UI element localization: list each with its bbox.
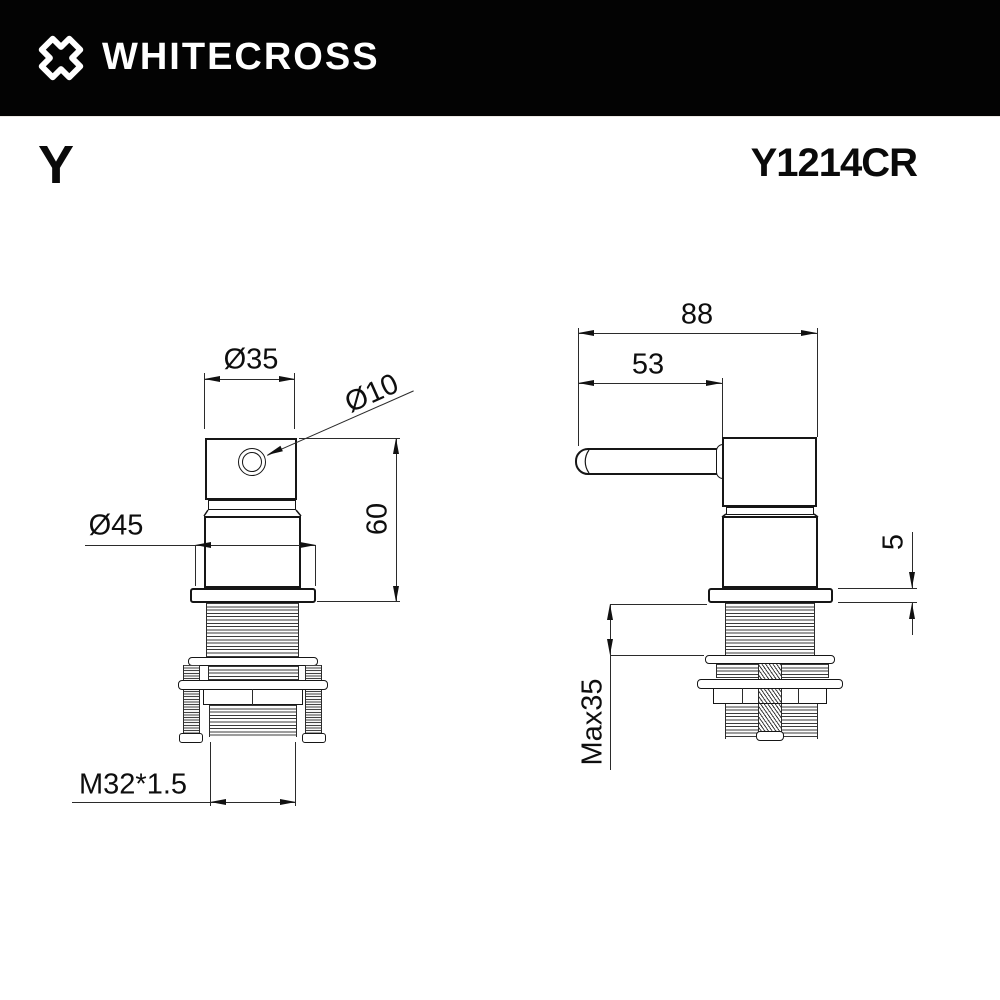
threaded-section [206, 603, 299, 657]
arrowhead-icon [909, 603, 915, 619]
arrowhead-icon [393, 586, 399, 602]
extension-line [610, 655, 704, 656]
dim-label-thread: M32*1.5 [79, 769, 187, 802]
dimension-line [396, 438, 397, 602]
arrowhead-icon [393, 438, 399, 454]
neck-ring-side [726, 507, 814, 515]
spec-sheet: WHITECROSS Y Y1214CR Ø35 Ø10 Ø45 M32*1.5 [0, 0, 1000, 1000]
extension-line [838, 588, 917, 589]
arrowhead-icon [300, 542, 316, 548]
mid-body-front [204, 516, 301, 588]
threaded-section [209, 705, 297, 737]
extension-line [578, 328, 579, 446]
screw-head [179, 733, 203, 743]
dim-label-flange-diameter: Ø45 [89, 510, 144, 543]
hole-inner-circle [242, 452, 262, 472]
series-label: Y [38, 138, 74, 192]
dimension-line [610, 604, 611, 770]
washer-plate [705, 655, 835, 664]
arrowhead-icon [607, 604, 613, 620]
dim-label-max-mounting: Max35 [577, 678, 610, 765]
arrowhead-icon [706, 380, 722, 386]
whitecross-x-logo-icon [29, 26, 93, 90]
escutcheon-flange-side [708, 588, 833, 603]
arrowhead-icon [578, 330, 594, 336]
header-bar: WHITECROSS [0, 0, 1000, 117]
arrowhead-icon [195, 542, 211, 548]
extension-line [817, 328, 818, 437]
dimension-line [578, 333, 817, 334]
threaded-section [725, 603, 815, 655]
dimension-line [578, 383, 722, 384]
arrowhead-icon [204, 376, 220, 382]
extension-line [299, 438, 400, 439]
extension-line [210, 742, 211, 806]
valve-body-side [722, 437, 817, 507]
product-code: Y1214CR [751, 141, 917, 185]
arrowhead-icon [909, 572, 915, 588]
extension-line [317, 601, 400, 602]
center-screw-stem [758, 689, 782, 703]
arrowhead-icon [578, 380, 594, 386]
dim-label-total-depth: 88 [681, 299, 713, 332]
washer-plate [188, 657, 318, 666]
dim-label-hole-diameter: Ø10 [340, 368, 404, 420]
arrowhead-icon [801, 330, 817, 336]
arrowhead-icon [279, 376, 295, 382]
neck-ring [208, 500, 296, 510]
nut-facet-line [798, 688, 799, 704]
arrowhead-icon [210, 799, 226, 805]
side-screw-rod [183, 665, 200, 733]
extension-line [315, 545, 316, 586]
screw-head [756, 731, 784, 741]
dim-label-flange-thickness: 5 [878, 534, 911, 550]
extension-line [722, 378, 723, 437]
screw-head [302, 733, 326, 743]
dim-label-top-diameter: Ø35 [224, 344, 279, 377]
extension-line [195, 545, 196, 586]
extension-line [610, 604, 707, 605]
extension-line [838, 602, 917, 603]
extension-line [295, 742, 296, 806]
arrowhead-icon [607, 639, 613, 655]
brand-name: WHITECROSS [102, 36, 380, 79]
lever-handle [575, 448, 722, 475]
dim-label-handle-length: 53 [632, 349, 664, 382]
dimension-line [72, 802, 296, 803]
escutcheon-flange-front [190, 588, 316, 603]
side-screw-rod [305, 665, 322, 733]
nut-facet-line [252, 689, 253, 705]
dim-label-height: 60 [362, 503, 395, 535]
mid-body-side [722, 516, 818, 588]
lock-nut [203, 689, 303, 705]
arrowhead-icon [280, 799, 296, 805]
nut-facet-line [742, 688, 743, 704]
threaded-section [208, 666, 299, 680]
